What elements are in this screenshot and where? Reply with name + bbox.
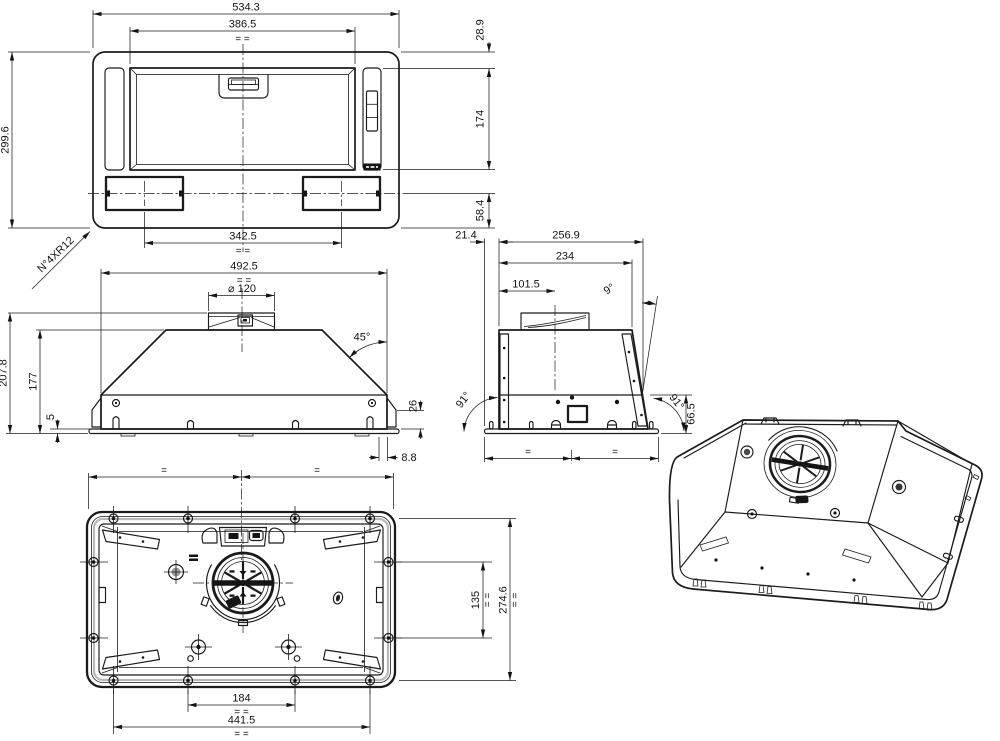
sym-mark: = = xyxy=(234,729,249,740)
front-view: 534.3 386.5 = = 299.6 28.9 174 58.4 xyxy=(0,2,495,290)
sym-mark: = xyxy=(314,466,320,477)
side-view: 21.4 256.9 234 101.5 9° 91° 91° 66.5 xyxy=(454,230,698,465)
dim-front-filter-height: 174 xyxy=(475,110,487,128)
bottom-body xyxy=(80,506,402,694)
side-body xyxy=(485,305,659,434)
iso-flange-feet xyxy=(693,579,932,610)
dim-flange-angle-left: 91° xyxy=(454,390,474,411)
sym-mark: = xyxy=(525,447,531,458)
hood-canopy-outline xyxy=(101,330,387,429)
technical-drawing-page: 534.3 386.5 = = 299.6 28.9 174 58.4 xyxy=(0,0,1000,741)
dim-flange-overhang: 8.8 xyxy=(401,452,416,464)
dim-front-lamp-spacing: 342.5 xyxy=(229,231,257,243)
sym-mark: = = xyxy=(236,246,251,257)
dim-side-base-height: 66.5 xyxy=(686,403,698,424)
cable-entry-opening xyxy=(568,406,587,422)
dim-side-flange-offset: 21.4 xyxy=(455,230,476,242)
grease-filter-panel xyxy=(130,68,355,170)
control-buttons xyxy=(367,91,378,131)
dim-elevation-body-width: 492.5 xyxy=(230,261,258,273)
iso-top-panel xyxy=(725,420,898,523)
sym-mark: = xyxy=(612,447,618,458)
duct-latch-detail xyxy=(189,528,284,562)
left-filter-strip xyxy=(105,68,124,170)
elevation-body xyxy=(89,288,399,436)
isometric-view xyxy=(669,418,982,610)
dim-front-top-offset: 28.9 xyxy=(475,19,487,40)
dim-front-overall-height: 299.6 xyxy=(0,126,12,154)
bottom-view: = = 135 = = 274.6 = = 184 = = 441.5 = = xyxy=(80,466,521,741)
dim-base-height: 26 xyxy=(408,400,420,412)
mounting-holes xyxy=(185,634,302,661)
side-latch-left xyxy=(99,588,106,603)
dim-fixing-spacing-depth: 274.6 xyxy=(498,586,510,614)
dim-flange-thickness: 5 xyxy=(45,414,57,420)
front-body-outline xyxy=(93,52,399,228)
dim-duct-center-offset: 101.5 xyxy=(512,279,540,291)
dim-fixing-spacing-width: 441.5 xyxy=(228,715,256,727)
dim-front-filter-width: 386.5 xyxy=(229,19,257,31)
front-dimensions: 534.3 386.5 = = 299.6 28.9 174 58.4 xyxy=(0,2,495,290)
dim-elevation-body-height: 177 xyxy=(28,372,40,390)
sym-mark: = = xyxy=(235,34,250,45)
iso-fan-outlet xyxy=(758,422,841,509)
dim-side-top-depth: 234 xyxy=(556,251,574,263)
sym-mark: = xyxy=(161,466,167,477)
dim-side-overall-depth: 256.9 xyxy=(552,230,580,242)
dim-front-overall-width: 534.3 xyxy=(232,2,260,14)
dim-elevation-total-height: 207.8 xyxy=(0,359,10,387)
dim-back-tilt-angle: 9° xyxy=(602,282,617,298)
cooker-hood-dimension-drawing: 534.3 386.5 = = 299.6 28.9 174 58.4 xyxy=(0,0,1000,741)
corner-radius-note: N°4XR12 xyxy=(35,235,76,276)
dim-mount-spacing-width: 184 xyxy=(232,693,250,705)
dim-canopy-angle: 45° xyxy=(354,332,371,344)
dim-front-bottom-offset: 58.4 xyxy=(475,200,487,221)
dim-mount-spacing-depth: 135 xyxy=(470,591,482,609)
elevation-view: 492.5 = = ⌀ 120 45° 207.8 177 5 xyxy=(0,261,424,465)
side-body-outline xyxy=(499,330,648,429)
front-centerlines xyxy=(88,44,404,252)
bottom-outer-frame xyxy=(87,512,395,687)
bottom-dimensions: = = 135 = = 274.6 = = 184 = = 441.5 = = xyxy=(89,466,522,741)
fan-outlet xyxy=(193,533,293,633)
side-latch-right xyxy=(377,588,384,603)
control-panel-strip xyxy=(363,68,381,170)
sym-mark: = = xyxy=(483,593,494,608)
dim-duct-diameter: ⌀ 120 xyxy=(228,283,256,295)
sym-mark: = = xyxy=(510,593,521,608)
